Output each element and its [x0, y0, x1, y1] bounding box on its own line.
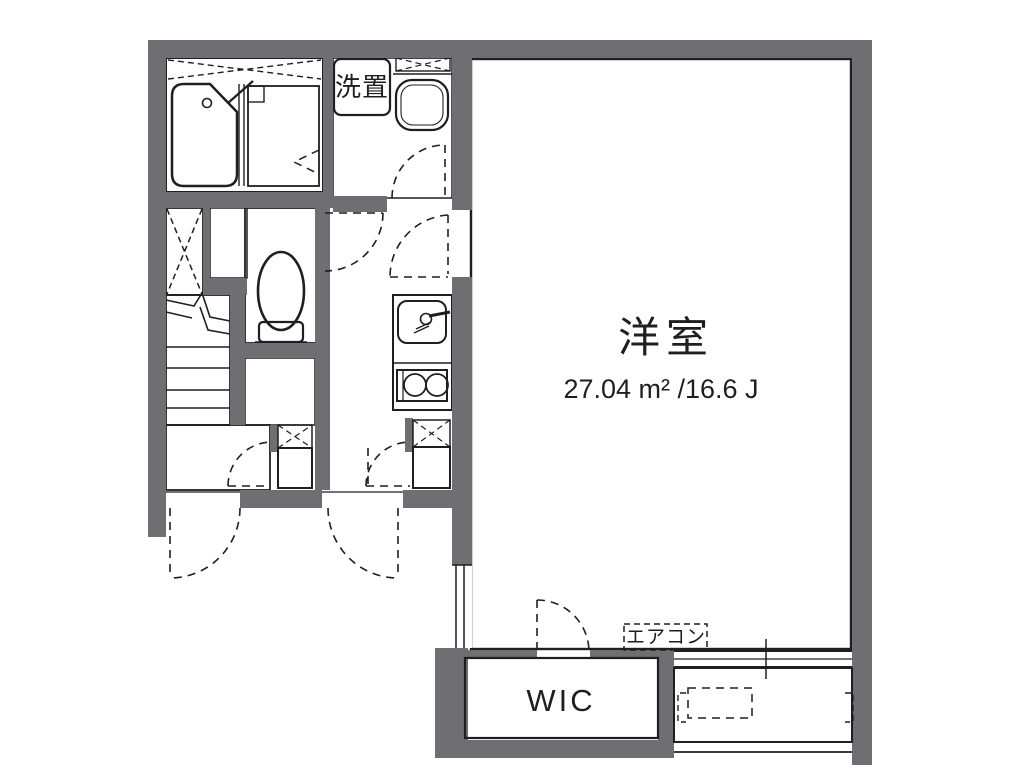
- toilet-counter: [210, 208, 247, 278]
- washer-space-label: 洗置: [335, 72, 389, 102]
- washbasin-icon: [393, 74, 452, 130]
- aircon-label: エアコン: [626, 627, 706, 648]
- balcony-equipment-mark: [688, 688, 752, 718]
- washer-space: 洗置: [334, 59, 390, 115]
- wic-door-swing: [537, 600, 589, 652]
- bathroom: [166, 58, 323, 192]
- kitchen-sink-icon: [398, 301, 450, 343]
- closet-right-door-swing: [366, 442, 410, 486]
- floor-plan-page: 洗置: [0, 0, 1019, 774]
- balcony: [674, 639, 853, 752]
- main-room-label: 洋室: [618, 314, 714, 361]
- laundry-pole-mark-left: [678, 693, 686, 722]
- shower-corner-shelf: [248, 86, 264, 102]
- side-window: [452, 565, 472, 648]
- bath-door-leaf: [228, 81, 253, 103]
- bath-divider: [239, 84, 244, 186]
- wic-room: WIC: [465, 600, 658, 738]
- stair-break-mark: [166, 293, 230, 334]
- shower-area: [228, 81, 319, 186]
- hall-door-swings: [325, 213, 448, 277]
- bath-drain-icon: [203, 99, 212, 108]
- main-room-area-label: 27.04 m² /16.6 J: [563, 374, 758, 404]
- washroom-door-swing: [392, 145, 445, 198]
- floor-plan: 洗置: [0, 0, 1019, 774]
- balcony-floor: [674, 668, 852, 742]
- stove-icon: [397, 370, 448, 401]
- stair-step-lines: [166, 347, 230, 408]
- washroom-shelf: [396, 58, 450, 71]
- closet-left-door-swing: [228, 442, 272, 486]
- entry-door-swings: [170, 508, 398, 578]
- bath-door-swing: [294, 150, 319, 174]
- bathtub-icon: [172, 84, 237, 186]
- aircon-mark: エアコン: [624, 624, 707, 650]
- hall-pocket: [245, 358, 315, 425]
- wic-label: WIC: [526, 683, 595, 718]
- stair-landing: [166, 425, 270, 490]
- kitchen: [393, 295, 452, 410]
- toilet-icon: [255, 252, 307, 342]
